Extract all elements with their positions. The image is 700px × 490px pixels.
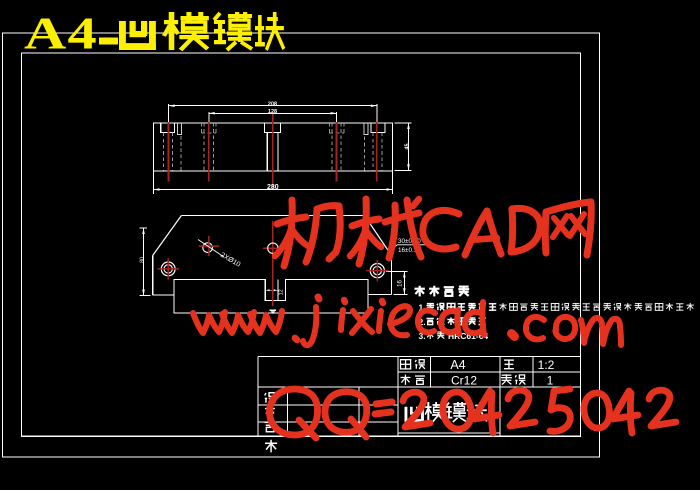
svg-text:1:2: 1:2 [538,358,555,372]
svg-text:A4: A4 [24,8,98,59]
svg-text:280: 280 [267,184,279,191]
svg-text:208: 208 [268,101,277,107]
svg-text:45: 45 [405,143,411,149]
svg-text:80: 80 [140,257,146,263]
svg-text:A4: A4 [450,358,465,372]
svg-text:16: 16 [398,280,404,287]
svg-text:128: 128 [268,109,277,115]
svg-text:Cr12: Cr12 [451,374,477,388]
svg-text:1: 1 [547,374,554,388]
svg-text:12: 12 [278,289,284,295]
